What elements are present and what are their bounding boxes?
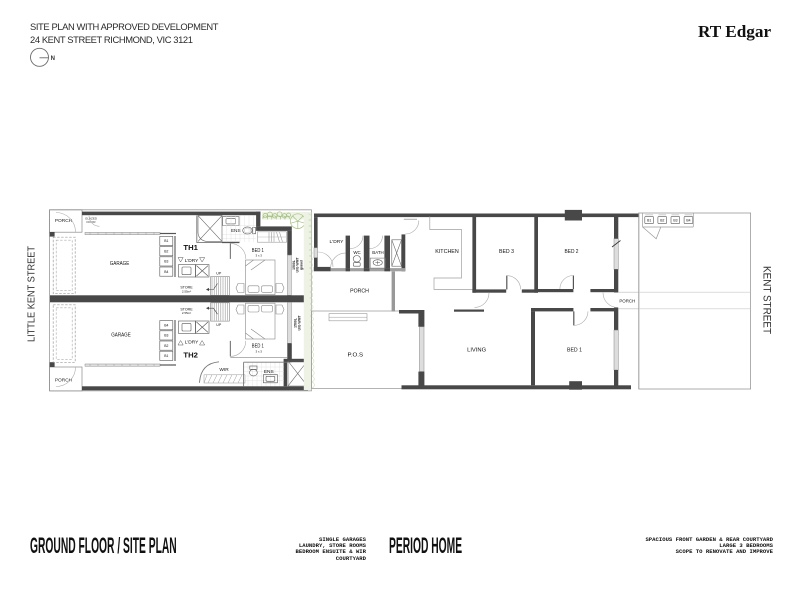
- svg-text:B3: B3: [164, 260, 168, 264]
- svg-text:U/G WMT: U/G WMT: [297, 315, 301, 331]
- svg-text:UP: UP: [216, 271, 222, 275]
- svg-text:WIR: WIR: [219, 367, 229, 373]
- svg-text:B1: B1: [164, 239, 168, 243]
- svg-text:BED 3: BED 3: [499, 249, 514, 255]
- svg-text:PORCH: PORCH: [55, 218, 73, 224]
- svg-text:L'DRY: L'DRY: [330, 239, 345, 245]
- svg-text:gravel: gravel: [299, 260, 303, 270]
- svg-text:KITCHEN: KITCHEN: [435, 249, 459, 255]
- svg-text:N: N: [51, 56, 55, 62]
- svg-text:3 x 3: 3 x 3: [255, 254, 262, 258]
- svg-text:B2: B2: [164, 249, 168, 253]
- svg-text:P.O.S: P.O.S: [348, 352, 364, 358]
- svg-text:3 x 3: 3 x 3: [255, 349, 262, 353]
- svg-text:2.55m²: 2.55m²: [182, 311, 191, 315]
- svg-text:ENS: ENS: [231, 228, 241, 234]
- svg-text:KENT STREET: KENT STREET: [761, 266, 773, 334]
- svg-text:B4: B4: [164, 270, 168, 274]
- svg-text:TH1: TH1: [183, 243, 198, 252]
- svg-text:LIVING: LIVING: [467, 347, 486, 353]
- svg-text:BED 2: BED 2: [565, 249, 579, 255]
- svg-text:L'DRY: L'DRY: [185, 340, 199, 346]
- svg-text:B3: B3: [673, 218, 677, 222]
- svg-text:B4: B4: [686, 218, 690, 222]
- svg-text:ENS: ENS: [264, 369, 274, 375]
- svg-text:L'DRY: L'DRY: [185, 258, 199, 264]
- svg-text:PORCH: PORCH: [350, 289, 369, 295]
- svg-text:BATH: BATH: [372, 250, 383, 255]
- svg-text:WC: WC: [353, 250, 360, 255]
- svg-text:B3: B3: [164, 334, 168, 338]
- svg-text:B1: B1: [647, 218, 651, 222]
- svg-text:B2: B2: [164, 344, 168, 348]
- svg-text:GARAGE: GARAGE: [111, 332, 131, 338]
- svg-text:LITTLE KENT STREET: LITTLE KENT STREET: [25, 245, 37, 342]
- svg-text:BED 1: BED 1: [567, 347, 582, 353]
- svg-text:2.55m²: 2.55m²: [182, 289, 191, 293]
- svg-text:B1: B1: [164, 354, 168, 358]
- svg-text:B4: B4: [164, 323, 168, 327]
- svg-text:DOOR: DOOR: [87, 220, 97, 224]
- svg-text:GARAGE: GARAGE: [110, 261, 130, 267]
- svg-text:PORCH: PORCH: [619, 298, 635, 303]
- svg-text:B2: B2: [660, 218, 664, 222]
- svg-text:UP: UP: [216, 323, 222, 327]
- svg-text:TH2: TH2: [183, 351, 198, 360]
